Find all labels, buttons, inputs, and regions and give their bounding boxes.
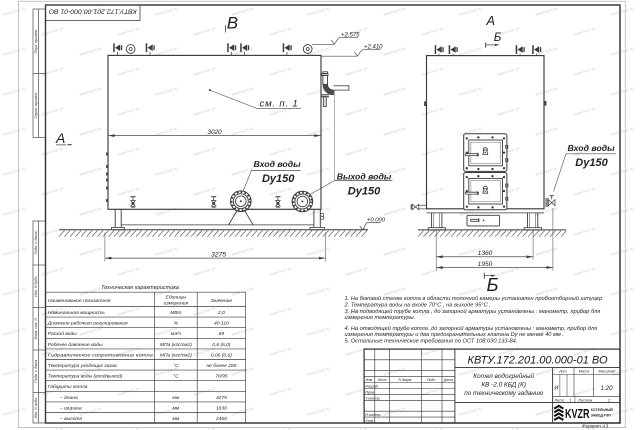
svg-text:1:20: 1:20 bbox=[600, 385, 613, 392]
svg-text:+0.000: +0.000 bbox=[367, 217, 386, 223]
svg-text:Значение: Значение bbox=[211, 298, 233, 304]
svg-text:измерения: измерения bbox=[164, 301, 189, 306]
svg-text:4. На отводящей трубе котла ,: 4. На отводящей трубе котла ,до запорной… bbox=[345, 325, 598, 332]
svg-text:И: И bbox=[554, 386, 558, 392]
svg-text:Инв. N подл.: Инв. N подл. bbox=[34, 397, 38, 419]
svg-text:Температура уходящих газов: Температура уходящих газов bbox=[48, 363, 117, 369]
svg-text:Лит.: Лит. bbox=[558, 370, 567, 374]
svg-text:1360: 1360 bbox=[478, 250, 493, 257]
svg-text:°С: °С bbox=[173, 363, 179, 369]
svg-text:Т.контр.: Т.контр. bbox=[365, 396, 380, 400]
svg-text:Лист: Лист bbox=[554, 398, 565, 402]
svg-text:Б: Б bbox=[494, 30, 502, 44]
svg-text:Dy150: Dy150 bbox=[348, 185, 381, 197]
svg-text:Техническая характеристика: Техническая характеристика bbox=[101, 285, 179, 291]
svg-text:Формат А3: Формат А3 bbox=[582, 424, 609, 430]
svg-text:МПа (кгс/см2): МПа (кгс/см2) bbox=[160, 342, 192, 348]
svg-text:2,0: 2,0 bbox=[217, 310, 225, 316]
svg-text:Рабочее давление воды: Рабочее давление воды bbox=[48, 342, 103, 348]
svg-text:– высота: – высота bbox=[59, 417, 82, 422]
svg-text:Подп. и дата: Подп. и дата bbox=[34, 231, 38, 254]
svg-text:не более 280: не более 280 bbox=[206, 363, 236, 369]
svg-text:1. На боковой стенке котла в: 1. На боковой стенке котла в области топ… bbox=[345, 295, 603, 302]
svg-text:Выход воды: Выход воды bbox=[337, 171, 392, 181]
svg-text:70/95: 70/95 bbox=[215, 374, 228, 380]
svg-text:Вход воды: Вход воды bbox=[254, 159, 302, 169]
svg-text:Разраб.: Разраб. bbox=[365, 385, 379, 389]
svg-text:Гидравлическое сопротивление к: Гидравлическое сопротивление котла bbox=[48, 352, 153, 358]
svg-text:МВт: МВт bbox=[170, 310, 181, 316]
svg-text:ЗАВОД РЭП: ЗАВОД РЭП bbox=[591, 413, 612, 417]
svg-text:Дата: Дата bbox=[443, 378, 453, 382]
svg-text:°С: °С bbox=[173, 374, 179, 380]
svg-text:МПа (кгс/см2): МПа (кгс/см2) bbox=[160, 352, 192, 358]
svg-text:– длина: – длина bbox=[59, 395, 78, 401]
svg-text:Вход воды: Вход воды bbox=[568, 143, 616, 153]
svg-text:N докум.: N докум. bbox=[399, 378, 413, 382]
svg-text:Масштаб: Масштаб bbox=[599, 370, 617, 374]
svg-text:Температура воды (вход/выход): Температура воды (вход/выход) bbox=[48, 374, 123, 380]
svg-text:Лист: Лист bbox=[377, 378, 387, 382]
svg-text:мм: мм bbox=[173, 417, 180, 422]
svg-text:измерения температуры.: измерения температуры. bbox=[345, 315, 416, 321]
svg-text:40-110: 40-110 bbox=[214, 321, 229, 327]
svg-text:Взам. инв. N: Взам. инв. N bbox=[34, 318, 38, 340]
svg-text:Н.контр.: Н.контр. bbox=[365, 413, 381, 417]
svg-text:69: 69 bbox=[219, 331, 225, 337]
svg-text:1: 1 bbox=[569, 398, 571, 402]
svg-text:Б: Б bbox=[487, 274, 499, 295]
svg-text:2. Температура воды на входе: 2. Температура воды на входе 70°С , на в… bbox=[344, 303, 491, 309]
svg-text:Номинальная мощность: Номинальная мощность bbox=[48, 310, 106, 316]
svg-text:Инв. N дубл.: Инв. N дубл. bbox=[34, 276, 38, 297]
svg-text:Подп. и дата: Подп. и дата bbox=[34, 360, 38, 383]
svg-text:Листов: Листов bbox=[577, 398, 592, 402]
svg-text:Наименование показателя: Наименование показателя bbox=[48, 298, 111, 304]
svg-text:Диапазон рабочего регулировани: Диапазон рабочего регулирования bbox=[47, 321, 128, 327]
svg-text:КВ -2,0 КБД (К): КВ -2,0 КБД (К) bbox=[481, 382, 526, 389]
svg-text:Подп.: Подп. bbox=[427, 378, 436, 382]
svg-text:KVZR: KVZR bbox=[565, 406, 590, 421]
svg-text:3275: 3275 bbox=[216, 395, 227, 401]
svg-text:А: А bbox=[486, 13, 496, 28]
svg-text:Изм.: Изм. bbox=[366, 378, 373, 382]
svg-text:3. На подводящей трубе котла: 3. На подводящей трубе котла , до запорн… bbox=[345, 308, 601, 315]
svg-text:Габариты котла: Габариты котла bbox=[48, 384, 88, 390]
svg-text:3275: 3275 bbox=[211, 252, 226, 259]
svg-text:Утв.: Утв. bbox=[365, 419, 374, 423]
svg-text:%: % bbox=[174, 321, 179, 327]
svg-text:КОТЕЛЬНЫЙ: КОТЕЛЬНЫЙ bbox=[591, 408, 614, 412]
svg-text:мм: мм bbox=[173, 396, 180, 401]
svg-text:А: А bbox=[55, 130, 65, 146]
svg-text:КВТУ.172.201.00.000-01 ВО: КВТУ.172.201.00.000-01 ВО bbox=[49, 8, 137, 15]
svg-text:3020: 3020 bbox=[207, 129, 222, 136]
svg-text:В: В bbox=[227, 14, 238, 33]
svg-text:0,06 (0,6): 0,06 (0,6) bbox=[211, 352, 232, 358]
svg-text:Dy150: Dy150 bbox=[575, 157, 608, 169]
svg-text:0,6 (6,0): 0,6 (6,0) bbox=[212, 342, 231, 348]
svg-text:Единицы: Единицы bbox=[166, 295, 187, 301]
svg-text:по техническому заданию: по техническому заданию bbox=[464, 389, 543, 397]
svg-text:2460: 2460 bbox=[215, 416, 227, 422]
svg-text:см. п. 1: см. п. 1 bbox=[259, 99, 298, 110]
svg-text:Расход воды: Расход воды bbox=[48, 331, 77, 337]
svg-text:Пров.: Пров. bbox=[365, 390, 375, 394]
svg-text:м3/ч: м3/ч bbox=[171, 331, 181, 337]
svg-text:Справ. примен.: Справ. примен. bbox=[34, 92, 38, 119]
svg-text:+2.575: +2.575 bbox=[341, 32, 360, 38]
svg-text:– ширина: – ширина bbox=[59, 406, 82, 411]
svg-text:1830: 1830 bbox=[216, 405, 227, 411]
svg-text:КВТУ.172.201.00.000-01 ВО: КВТУ.172.201.00.000-01 ВО bbox=[468, 355, 609, 367]
svg-text:измерения температуры и два пр: измерения температуры и два предохраните… bbox=[345, 332, 564, 338]
svg-text:Масса: Масса bbox=[579, 370, 590, 374]
svg-text:Котел водогрейный: Котел водогрейный bbox=[473, 372, 534, 380]
svg-text:+2.410: +2.410 bbox=[364, 45, 383, 51]
svg-text:1950: 1950 bbox=[478, 261, 493, 268]
svg-text:Dy150: Dy150 bbox=[262, 173, 295, 185]
svg-text:5. Остальные технические треб: 5. Остальные технические требования по О… bbox=[345, 339, 518, 345]
svg-text:Перв. примен.: Перв. примен. bbox=[34, 29, 38, 54]
svg-text:мм: мм bbox=[173, 406, 180, 411]
